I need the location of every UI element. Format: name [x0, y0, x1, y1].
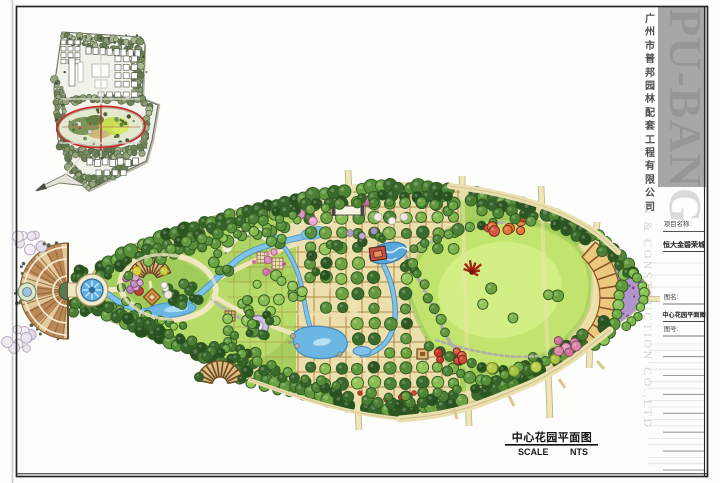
svg-text:图号:: 图号: — [664, 325, 679, 333]
svg-text:州: 州 — [644, 26, 655, 38]
svg-text:N & CONSTRUCTION CO.,LTD: N & CONSTRUCTION CO.,LTD — [641, 205, 655, 430]
svg-text:配: 配 — [645, 107, 655, 119]
svg-text:普: 普 — [645, 52, 655, 65]
svg-text:司: 司 — [645, 201, 655, 213]
svg-text:套: 套 — [644, 119, 656, 132]
svg-text:NTS: NTS — [570, 447, 588, 457]
svg-text:市: 市 — [645, 39, 655, 52]
svg-text:中心花园平面图: 中心花园平面图 — [662, 311, 705, 319]
svg-text:中心花园平面图: 中心花园平面图 — [512, 430, 593, 444]
svg-text:有: 有 — [645, 159, 655, 172]
svg-text:邦: 邦 — [645, 66, 655, 79]
svg-text:公: 公 — [645, 187, 655, 199]
svg-text:广: 广 — [645, 12, 655, 25]
svg-text:限: 限 — [645, 174, 656, 186]
svg-text:林: 林 — [645, 92, 656, 105]
svg-text:园: 园 — [645, 80, 655, 92]
svg-text:SCALE: SCALE — [518, 447, 549, 457]
svg-text:程: 程 — [645, 146, 655, 159]
svg-text:恒大金碧荣城: 恒大金碧荣城 — [662, 240, 705, 249]
svg-text:图名:: 图名: — [664, 292, 679, 301]
svg-text:项目名称:: 项目名称: — [664, 219, 691, 228]
svg-text:工: 工 — [645, 135, 655, 146]
